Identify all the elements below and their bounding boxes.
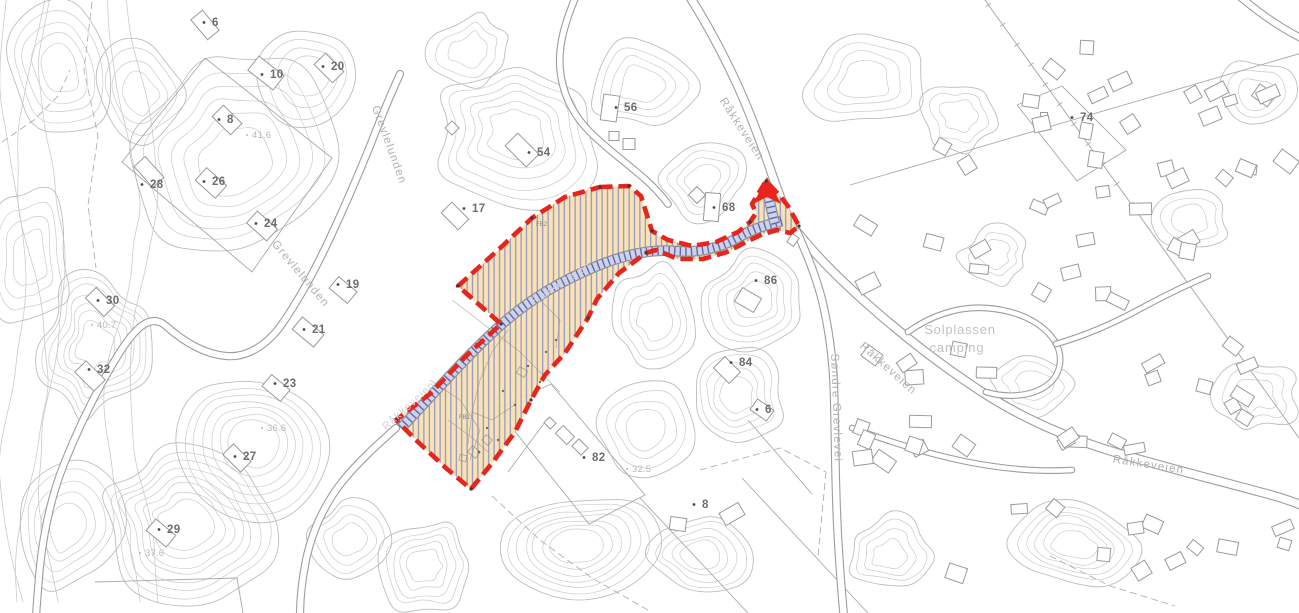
house-number-label: 8 bbox=[702, 499, 709, 511]
contour-path bbox=[111, 452, 271, 599]
house-dot bbox=[337, 283, 340, 286]
house-dot bbox=[203, 180, 206, 183]
house-dot bbox=[203, 21, 206, 24]
dashed-property-line bbox=[700, 448, 826, 472]
house-number-label: 21 bbox=[312, 324, 326, 336]
contour-path bbox=[814, 43, 912, 113]
contour-path bbox=[630, 283, 681, 351]
camping-cabin bbox=[1235, 409, 1253, 427]
camping-cabin bbox=[945, 563, 968, 584]
contour-path bbox=[856, 519, 927, 580]
camping-cabin bbox=[1277, 537, 1292, 551]
power-line-tick bbox=[1114, 182, 1119, 186]
camping-cabin bbox=[1076, 232, 1095, 247]
house-dot bbox=[730, 361, 733, 364]
camping-cabin bbox=[933, 137, 952, 156]
contour-path bbox=[400, 541, 447, 590]
plan-vertex-dot bbox=[764, 179, 767, 182]
contour-path bbox=[838, 60, 888, 97]
camping-cabin bbox=[1272, 519, 1295, 536]
house-number-label: 10 bbox=[270, 69, 284, 81]
spot-elevation-dot bbox=[246, 134, 248, 136]
house-number-label: 24 bbox=[264, 218, 278, 230]
house-dot bbox=[755, 279, 758, 282]
contour-path bbox=[22, 23, 95, 112]
contour-path bbox=[158, 86, 313, 229]
boundary-line bbox=[850, 52, 1299, 185]
contour-path bbox=[1002, 361, 1065, 410]
plan-vertex-dot bbox=[650, 229, 653, 232]
building bbox=[609, 132, 619, 141]
contour-path bbox=[549, 529, 603, 563]
camping-cabin bbox=[1223, 94, 1238, 107]
camping-cabin bbox=[1184, 85, 1202, 104]
camping-cabin bbox=[1032, 115, 1051, 133]
contour-path bbox=[621, 273, 687, 359]
building bbox=[505, 133, 539, 167]
road-label: Søndre Grevlevei bbox=[828, 353, 844, 462]
power-line-tick bbox=[1086, 142, 1091, 146]
house-number-label: 86 bbox=[764, 275, 778, 287]
plan-detail-dot bbox=[486, 427, 488, 429]
contour-path bbox=[802, 34, 923, 121]
building bbox=[623, 139, 635, 150]
house-number-label: 82 bbox=[592, 452, 606, 464]
spot-elevation-label: 37.6 bbox=[145, 548, 164, 559]
plan-code-label: FB2 bbox=[536, 222, 548, 228]
camping-cabin bbox=[1120, 114, 1141, 135]
contour-path bbox=[1210, 362, 1298, 429]
dashed-property-line bbox=[84, 2, 98, 268]
camping-cabin bbox=[1060, 264, 1081, 281]
house-dot bbox=[693, 503, 696, 506]
camping-cabin bbox=[871, 449, 897, 473]
camping-cabin bbox=[1217, 539, 1239, 556]
house-number-label: 54 bbox=[537, 147, 551, 159]
dashed-property-line bbox=[1050, 556, 1175, 606]
contour-path bbox=[527, 514, 631, 582]
contour-path bbox=[620, 65, 666, 103]
camping-cabin bbox=[1106, 292, 1129, 310]
house-dot bbox=[261, 73, 264, 76]
building bbox=[1079, 122, 1094, 140]
house-dot bbox=[234, 455, 237, 458]
road-label: Grevlelunden bbox=[369, 104, 409, 186]
house-number-label: 27 bbox=[243, 451, 257, 463]
house-number-label: 6 bbox=[765, 404, 772, 416]
plan-detail-dot bbox=[555, 339, 557, 341]
contour-path bbox=[50, 503, 87, 553]
plan-detail-dot bbox=[497, 439, 499, 441]
building bbox=[669, 516, 687, 531]
power-line-tick bbox=[1000, 23, 1005, 27]
parcel-line bbox=[748, 420, 812, 494]
camping-cabin bbox=[1088, 150, 1105, 168]
camping-cabin bbox=[1097, 547, 1111, 561]
camping-cabin bbox=[976, 367, 997, 378]
contour-path bbox=[607, 390, 686, 468]
camping-cabin bbox=[1123, 442, 1145, 455]
power-line-tick bbox=[1014, 43, 1019, 47]
house-dot bbox=[615, 106, 618, 109]
road-fill-corner-road-northeast bbox=[1238, 0, 1299, 40]
house-number-label: 30 bbox=[106, 295, 120, 307]
plan-vertex-dot bbox=[586, 316, 589, 319]
plan-vertex-dot bbox=[748, 220, 751, 223]
house-dot bbox=[158, 528, 161, 531]
spot-elevation-label: 40.7 bbox=[97, 320, 116, 331]
building bbox=[441, 202, 469, 230]
contour-path bbox=[626, 410, 665, 452]
contour-path bbox=[125, 468, 250, 583]
road-casing-grevlelunden bbox=[36, 74, 400, 613]
power-line-tick bbox=[1029, 63, 1034, 67]
parcel-line bbox=[742, 478, 868, 613]
contour-path bbox=[0, 202, 62, 310]
house-dot bbox=[88, 368, 91, 371]
house-number-label: 17 bbox=[472, 203, 486, 215]
house-number-label: 32 bbox=[97, 364, 111, 376]
spot-elevation-dot bbox=[139, 552, 141, 554]
contour-path bbox=[616, 402, 677, 459]
house-number-label: 28 bbox=[150, 179, 164, 191]
plan-vertex-dot bbox=[529, 398, 532, 401]
camping-cabin bbox=[1187, 539, 1204, 555]
contour-path bbox=[612, 262, 696, 369]
contour-path bbox=[41, 43, 79, 92]
plan-vertex-dot bbox=[456, 284, 459, 287]
spot-elevation-label: 36.6 bbox=[267, 423, 286, 434]
house-dot bbox=[274, 382, 277, 385]
camping-cabin bbox=[1165, 552, 1186, 571]
building bbox=[689, 187, 706, 204]
house-dot bbox=[463, 207, 466, 210]
camping-cabin bbox=[1179, 242, 1197, 260]
house-dot bbox=[303, 328, 306, 331]
contour-path bbox=[720, 377, 753, 414]
camping-cabin bbox=[1031, 282, 1051, 302]
camping-cabin bbox=[923, 233, 944, 251]
contour-path bbox=[872, 538, 908, 569]
plan-vertex-dot bbox=[530, 216, 533, 219]
camping-cabin bbox=[852, 449, 873, 466]
parcel-line bbox=[122, 58, 332, 272]
map-viewport[interactable]: RåkkeveienRåkkeveienRåkkeveienGrevlelund… bbox=[0, 0, 1299, 613]
power-line-tick bbox=[1071, 122, 1076, 126]
contour-path bbox=[15, 11, 103, 123]
camping-cabin bbox=[1198, 106, 1222, 126]
plan-vertex-dot bbox=[797, 224, 800, 227]
camping-cabin bbox=[1096, 185, 1111, 198]
house-dot bbox=[218, 118, 221, 121]
plan-detail-dot bbox=[478, 451, 480, 453]
power-line-tick bbox=[986, 3, 991, 7]
contour-path bbox=[929, 93, 988, 143]
contour-path bbox=[636, 297, 672, 341]
power-line-tick bbox=[1043, 83, 1048, 87]
contour-path bbox=[865, 529, 917, 576]
contour-path bbox=[406, 549, 442, 582]
house-number-label: 29 bbox=[167, 524, 181, 536]
contour-path bbox=[448, 31, 487, 69]
camping-cabin bbox=[969, 264, 989, 275]
house-dot bbox=[255, 222, 258, 225]
house-number-label: 68 bbox=[722, 202, 736, 214]
house-number-label: 8 bbox=[227, 114, 234, 126]
plan-detail-dot bbox=[539, 381, 541, 383]
contour-path bbox=[1172, 204, 1208, 234]
contour-path bbox=[171, 99, 299, 217]
house-number-label: 6 bbox=[212, 17, 219, 29]
plan-vertex-dot bbox=[644, 251, 647, 254]
parcel-line bbox=[95, 578, 243, 613]
building bbox=[544, 417, 556, 429]
house-dot bbox=[1071, 116, 1074, 119]
house-dot bbox=[528, 151, 531, 154]
house-number-label: 19 bbox=[346, 279, 360, 291]
contour-path bbox=[122, 71, 160, 116]
contour-path bbox=[1027, 512, 1125, 574]
house-number-label: 74 bbox=[1080, 112, 1094, 124]
contour-path bbox=[939, 100, 978, 133]
dashed-property-line bbox=[492, 496, 648, 610]
house-number-label: 23 bbox=[283, 378, 297, 390]
contour-path bbox=[130, 57, 339, 251]
plan-vertex-dot bbox=[499, 322, 502, 325]
camping-cabin bbox=[952, 434, 976, 457]
spot-elevation-label: 32.5 bbox=[632, 464, 651, 475]
spot-elevation-dot bbox=[261, 427, 263, 429]
camping-cabin bbox=[1141, 514, 1164, 534]
camping-cabin bbox=[1011, 504, 1028, 515]
camping-cabin bbox=[957, 155, 977, 176]
contour-path bbox=[508, 504, 650, 594]
map-canvas[interactable]: RåkkeveienRåkkeveienRåkkeveienGrevlelund… bbox=[0, 0, 1299, 613]
camping-cabin bbox=[1108, 71, 1133, 92]
contour-path bbox=[332, 523, 367, 556]
house-dot bbox=[97, 299, 100, 302]
road-fill-grevlelunden bbox=[36, 74, 400, 613]
building bbox=[719, 502, 745, 525]
house-dot bbox=[713, 206, 716, 209]
camping-cabin bbox=[909, 415, 931, 427]
camping-cabin bbox=[854, 215, 878, 237]
spot-elevation-dot bbox=[626, 468, 628, 470]
place-label: camping bbox=[930, 340, 985, 355]
map-labels: RåkkeveienRåkkeveienRåkkeveienGrevlelund… bbox=[88, 17, 1185, 559]
house-number-label: 84 bbox=[739, 357, 753, 369]
house-number-label: 20 bbox=[331, 61, 345, 73]
camping-cabin bbox=[1129, 203, 1151, 215]
contour-path bbox=[700, 354, 774, 433]
road-casing-raakkeveien-southwest bbox=[300, 428, 396, 613]
house-number-label: 26 bbox=[212, 176, 226, 188]
building bbox=[555, 425, 574, 444]
power-line-tick bbox=[1057, 102, 1062, 106]
contour-path bbox=[1051, 531, 1098, 559]
contour-path bbox=[203, 402, 303, 496]
camping-cabin bbox=[1080, 40, 1094, 54]
contour-path bbox=[96, 38, 186, 145]
place-label: Solplassen bbox=[924, 322, 996, 337]
plan-detail-dot bbox=[545, 351, 547, 353]
buildings bbox=[75, 10, 1299, 583]
camping-cabin bbox=[1141, 354, 1164, 373]
plan-code-label: FB1 bbox=[459, 415, 471, 421]
contour-path bbox=[920, 87, 999, 154]
plan-detail-dot bbox=[527, 365, 529, 367]
dashed-property-line bbox=[818, 472, 826, 556]
contour-path bbox=[827, 50, 900, 104]
house-dot bbox=[756, 408, 759, 411]
contour-path bbox=[324, 514, 377, 565]
spot-elevation-dot bbox=[91, 324, 93, 326]
camping-cabin bbox=[1216, 169, 1234, 187]
building bbox=[703, 192, 720, 221]
house-dot bbox=[322, 65, 325, 68]
contour-path bbox=[645, 517, 753, 592]
building bbox=[1088, 86, 1109, 104]
camping-cabin bbox=[1273, 149, 1299, 174]
contour-path bbox=[680, 540, 720, 569]
camping-cabin bbox=[1131, 560, 1152, 581]
plan-detail-dot bbox=[502, 390, 504, 392]
house-dot bbox=[583, 456, 586, 459]
camping-cabin bbox=[1196, 378, 1213, 394]
contour-path bbox=[436, 23, 497, 78]
spot-elevation-label: 41.6 bbox=[252, 130, 271, 141]
plan-vertex-dot bbox=[598, 185, 601, 188]
camping-cabin bbox=[1127, 521, 1144, 535]
camping-cabin bbox=[1222, 336, 1243, 356]
building bbox=[572, 439, 588, 455]
camping-cabin bbox=[1022, 94, 1040, 109]
house-number-label: 56 bbox=[624, 102, 638, 114]
plan-detail-dot bbox=[514, 404, 516, 406]
contour-path bbox=[5, 217, 53, 299]
dashed-property-line bbox=[2, 70, 70, 142]
contour-path bbox=[306, 498, 391, 580]
plan-vertex-dot bbox=[627, 184, 630, 187]
plan-vertex-dot bbox=[469, 487, 472, 490]
house-dot bbox=[141, 183, 144, 186]
camping-cabin bbox=[1043, 58, 1066, 80]
contour-path bbox=[610, 55, 676, 109]
contour-path bbox=[212, 407, 296, 487]
camping-cabin bbox=[1043, 193, 1061, 208]
